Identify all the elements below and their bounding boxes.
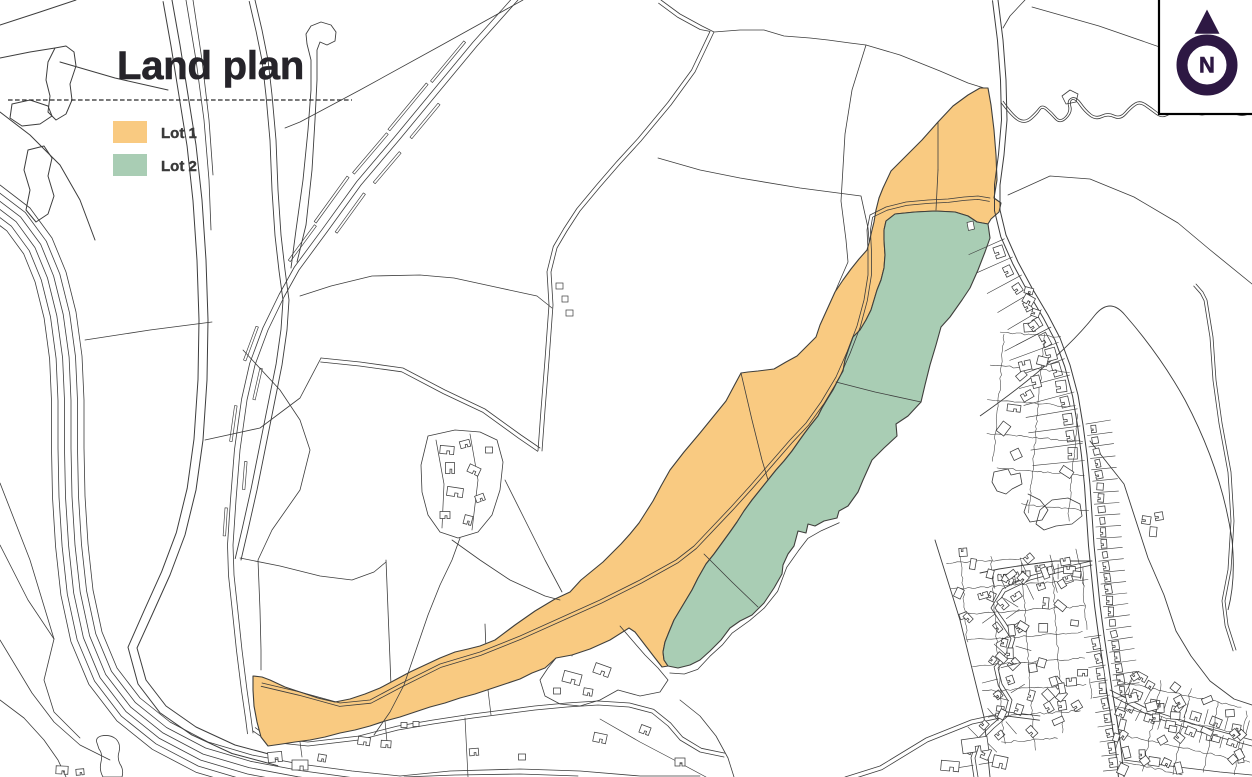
svg-text:Lot 2: Lot 2 bbox=[161, 158, 197, 175]
svg-text:Lot 1: Lot 1 bbox=[161, 125, 197, 142]
svg-text:Land plan: Land plan bbox=[117, 44, 304, 88]
svg-text:N: N bbox=[1199, 53, 1215, 78]
